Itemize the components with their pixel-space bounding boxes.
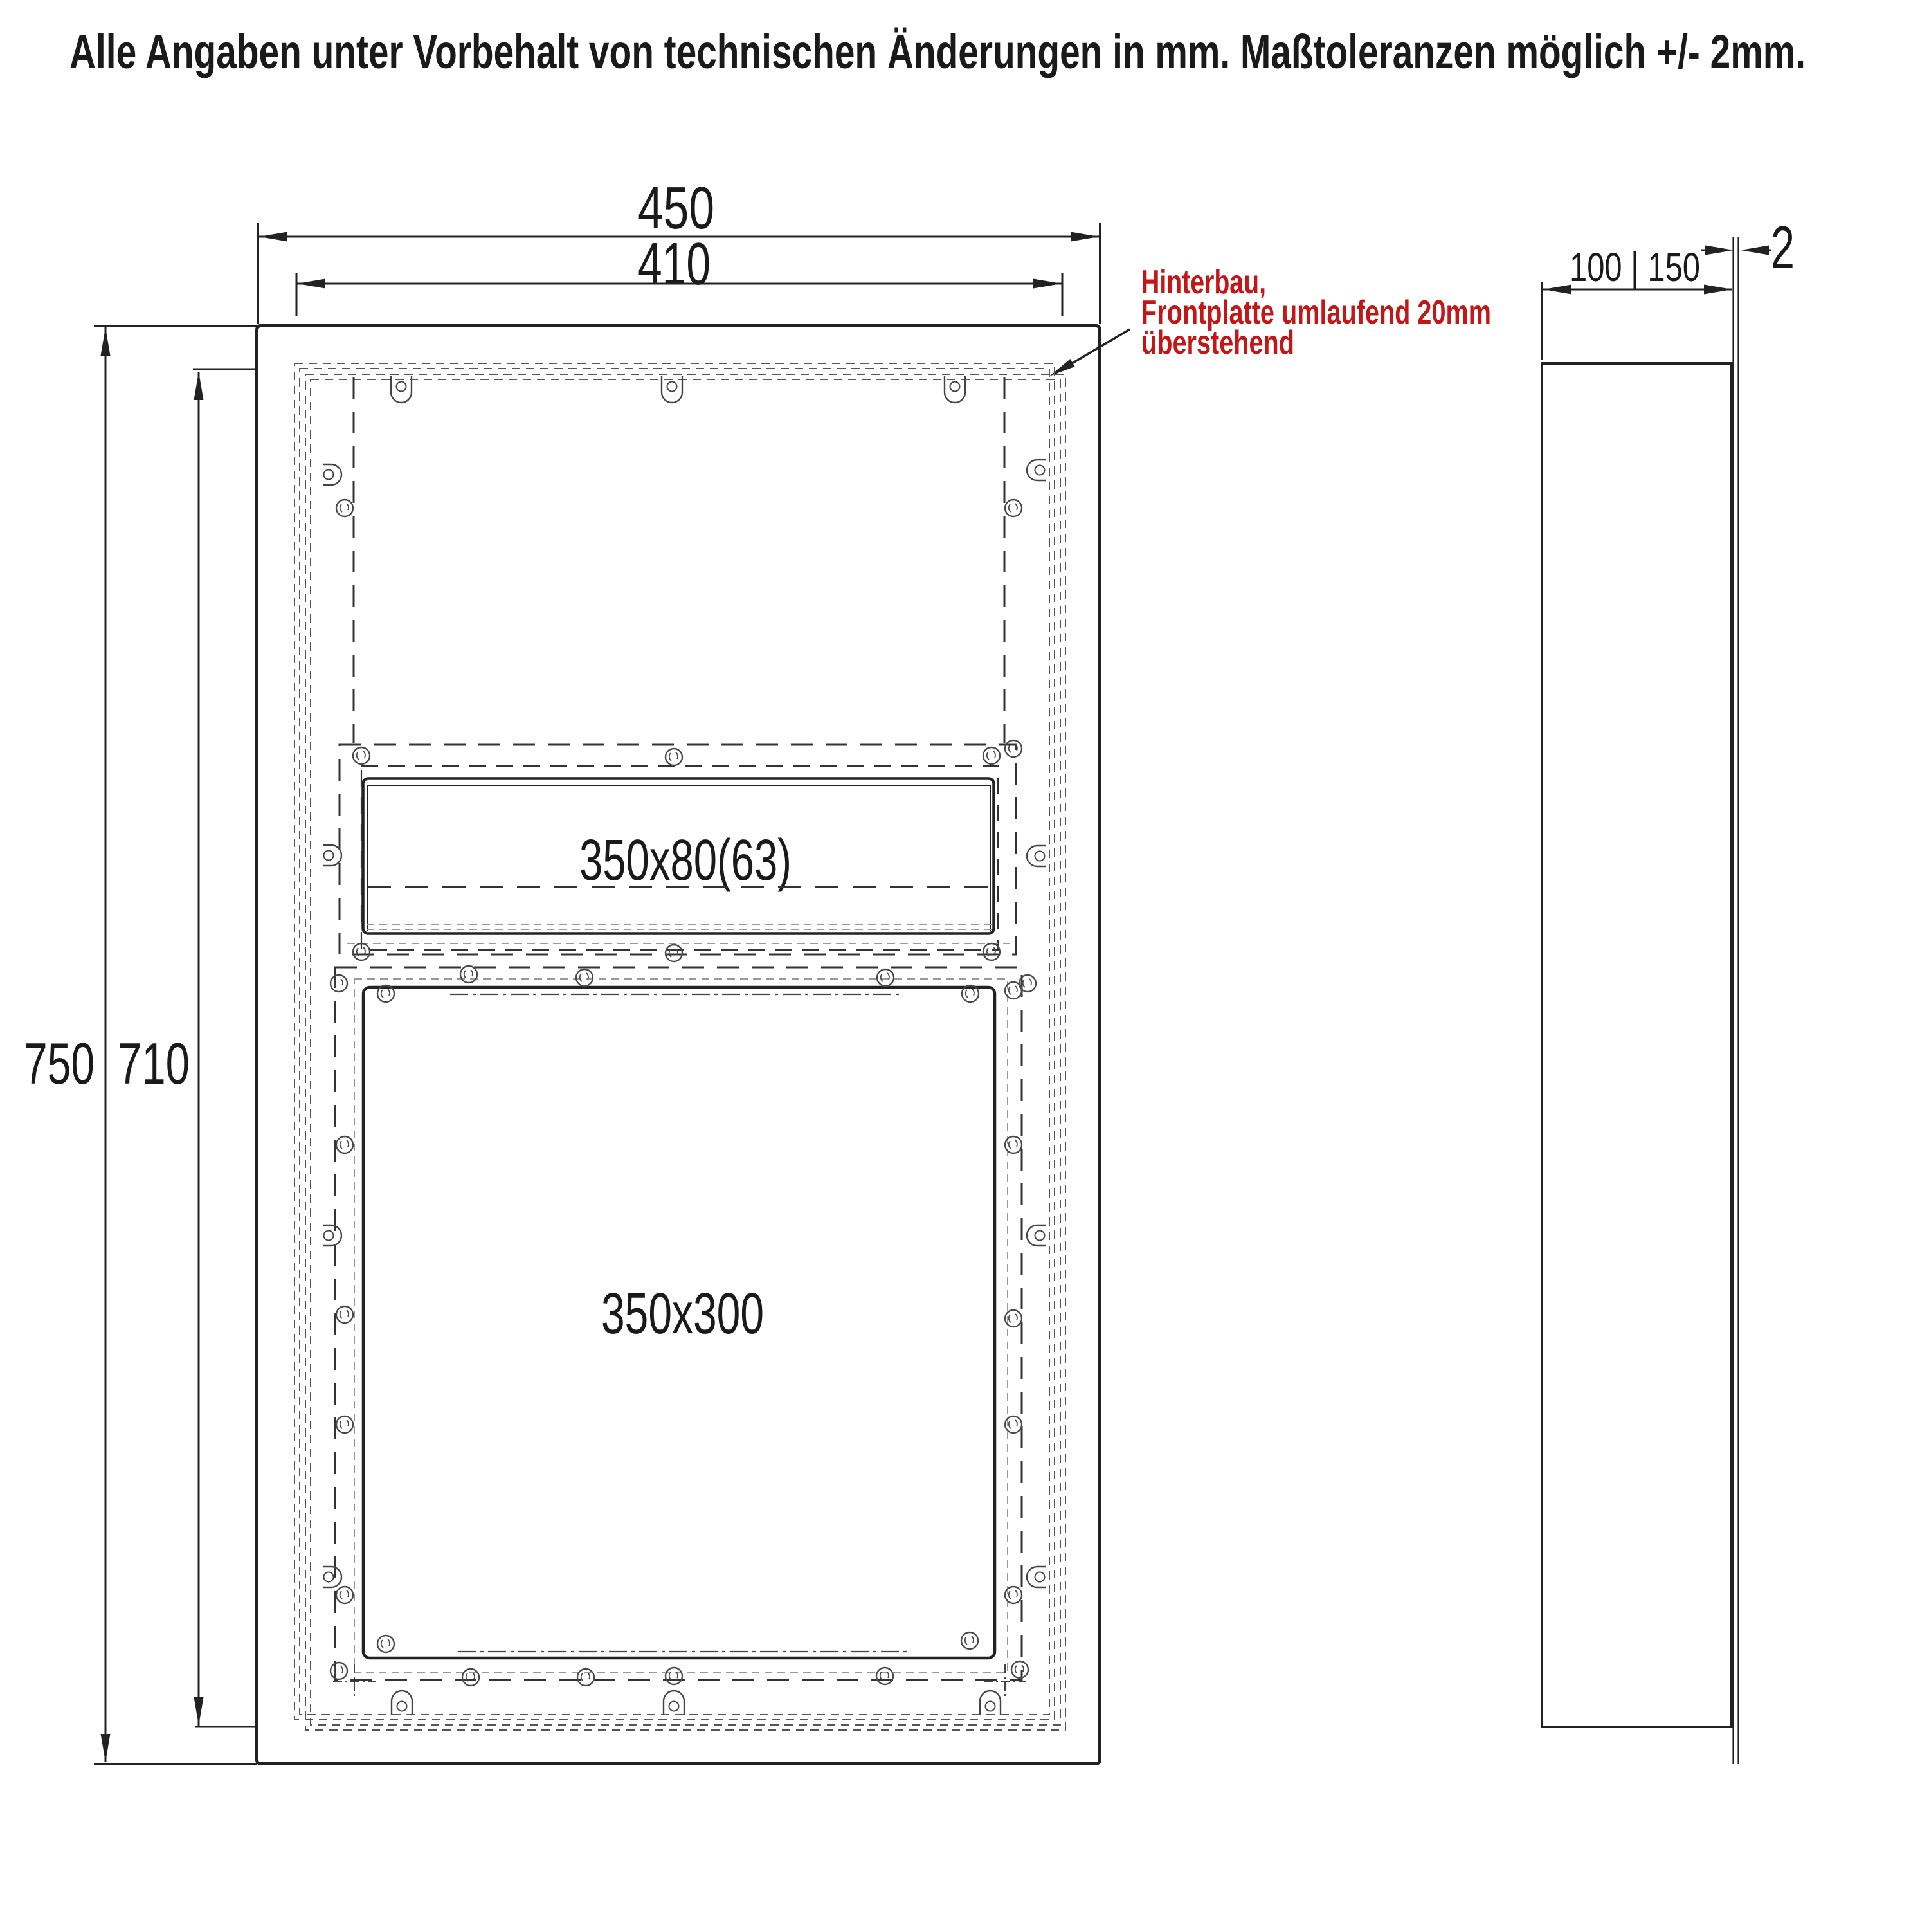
svg-text:410: 410 bbox=[638, 230, 711, 297]
svg-text:Alle Angaben unter Vorbehalt v: Alle Angaben unter Vorbehalt von technis… bbox=[69, 25, 1806, 78]
svg-text:überstehend: überstehend bbox=[1141, 324, 1294, 361]
svg-text:2: 2 bbox=[1771, 214, 1795, 281]
svg-text:350x80(63): 350x80(63) bbox=[579, 828, 792, 893]
svg-text:710: 710 bbox=[118, 1032, 190, 1097]
svg-text:100 | 150: 100 | 150 bbox=[1570, 245, 1700, 290]
svg-text:350x300: 350x300 bbox=[601, 1282, 764, 1346]
svg-text:750: 750 bbox=[24, 1032, 95, 1097]
